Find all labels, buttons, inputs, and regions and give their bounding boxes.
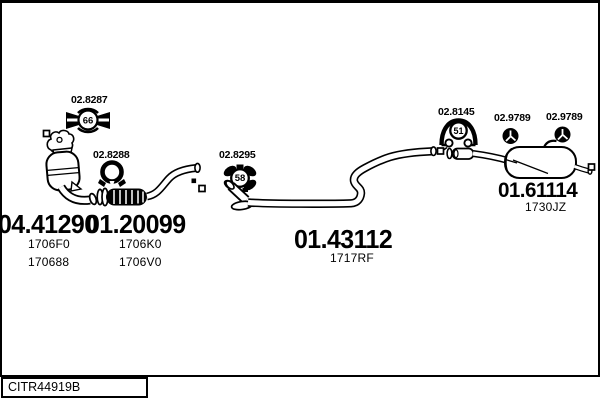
gasket-badge-66: 66 xyxy=(83,115,94,126)
exhaust-parts-diagram: 66 xyxy=(0,0,600,400)
fitting-label-gasket-b: 02.8295 xyxy=(219,150,256,161)
clamp-icon xyxy=(98,163,126,189)
catalytic-converter-drawing xyxy=(44,130,98,205)
fitting-label-clamp: 02.8288 xyxy=(93,150,130,161)
fitting-label-mount-a: 02.9789 xyxy=(494,113,531,124)
mount-marker xyxy=(192,179,197,184)
oe-code: 1717RF xyxy=(330,252,374,264)
oe-code: 1706F0 xyxy=(28,238,70,250)
part-number-rear-muffler: 01.61114 xyxy=(498,180,577,202)
oe-code: 1706V0 xyxy=(119,256,162,268)
fitting-label-mount-b: 02.9789 xyxy=(546,112,583,123)
rubber-mount-icon xyxy=(555,127,571,143)
mount-marker xyxy=(199,186,205,192)
rubber-mount-icon xyxy=(503,128,519,144)
mount-marker xyxy=(589,164,595,170)
oe-code: 170688 xyxy=(28,256,69,268)
mount-marker xyxy=(44,131,50,137)
gasket-badge-51: 51 xyxy=(453,126,463,136)
part-number-center-pipe: 01.43112 xyxy=(294,226,392,252)
gasket-badge-58: 58 xyxy=(235,173,246,184)
fitting-label-gasket-a: 02.8287 xyxy=(71,95,108,106)
part-number-catalytic: 04.41290 xyxy=(0,211,98,237)
diagram-code: CITR44919B xyxy=(8,381,80,394)
mount-marker xyxy=(438,148,444,154)
gasket-icon-51: 51 xyxy=(442,121,476,147)
oe-code: 1706K0 xyxy=(119,238,162,250)
gasket-icon-66: 66 xyxy=(66,109,110,132)
fitting-label-gasket-c: 02.8145 xyxy=(438,107,475,118)
part-number-front-pipe: 01.20099 xyxy=(86,211,186,237)
center-pipe-drawing xyxy=(225,147,437,211)
rear-muffler-drawing xyxy=(438,141,595,178)
oe-code: 1730JZ xyxy=(525,201,566,213)
diagram-code-box: CITR44919B xyxy=(1,377,148,398)
